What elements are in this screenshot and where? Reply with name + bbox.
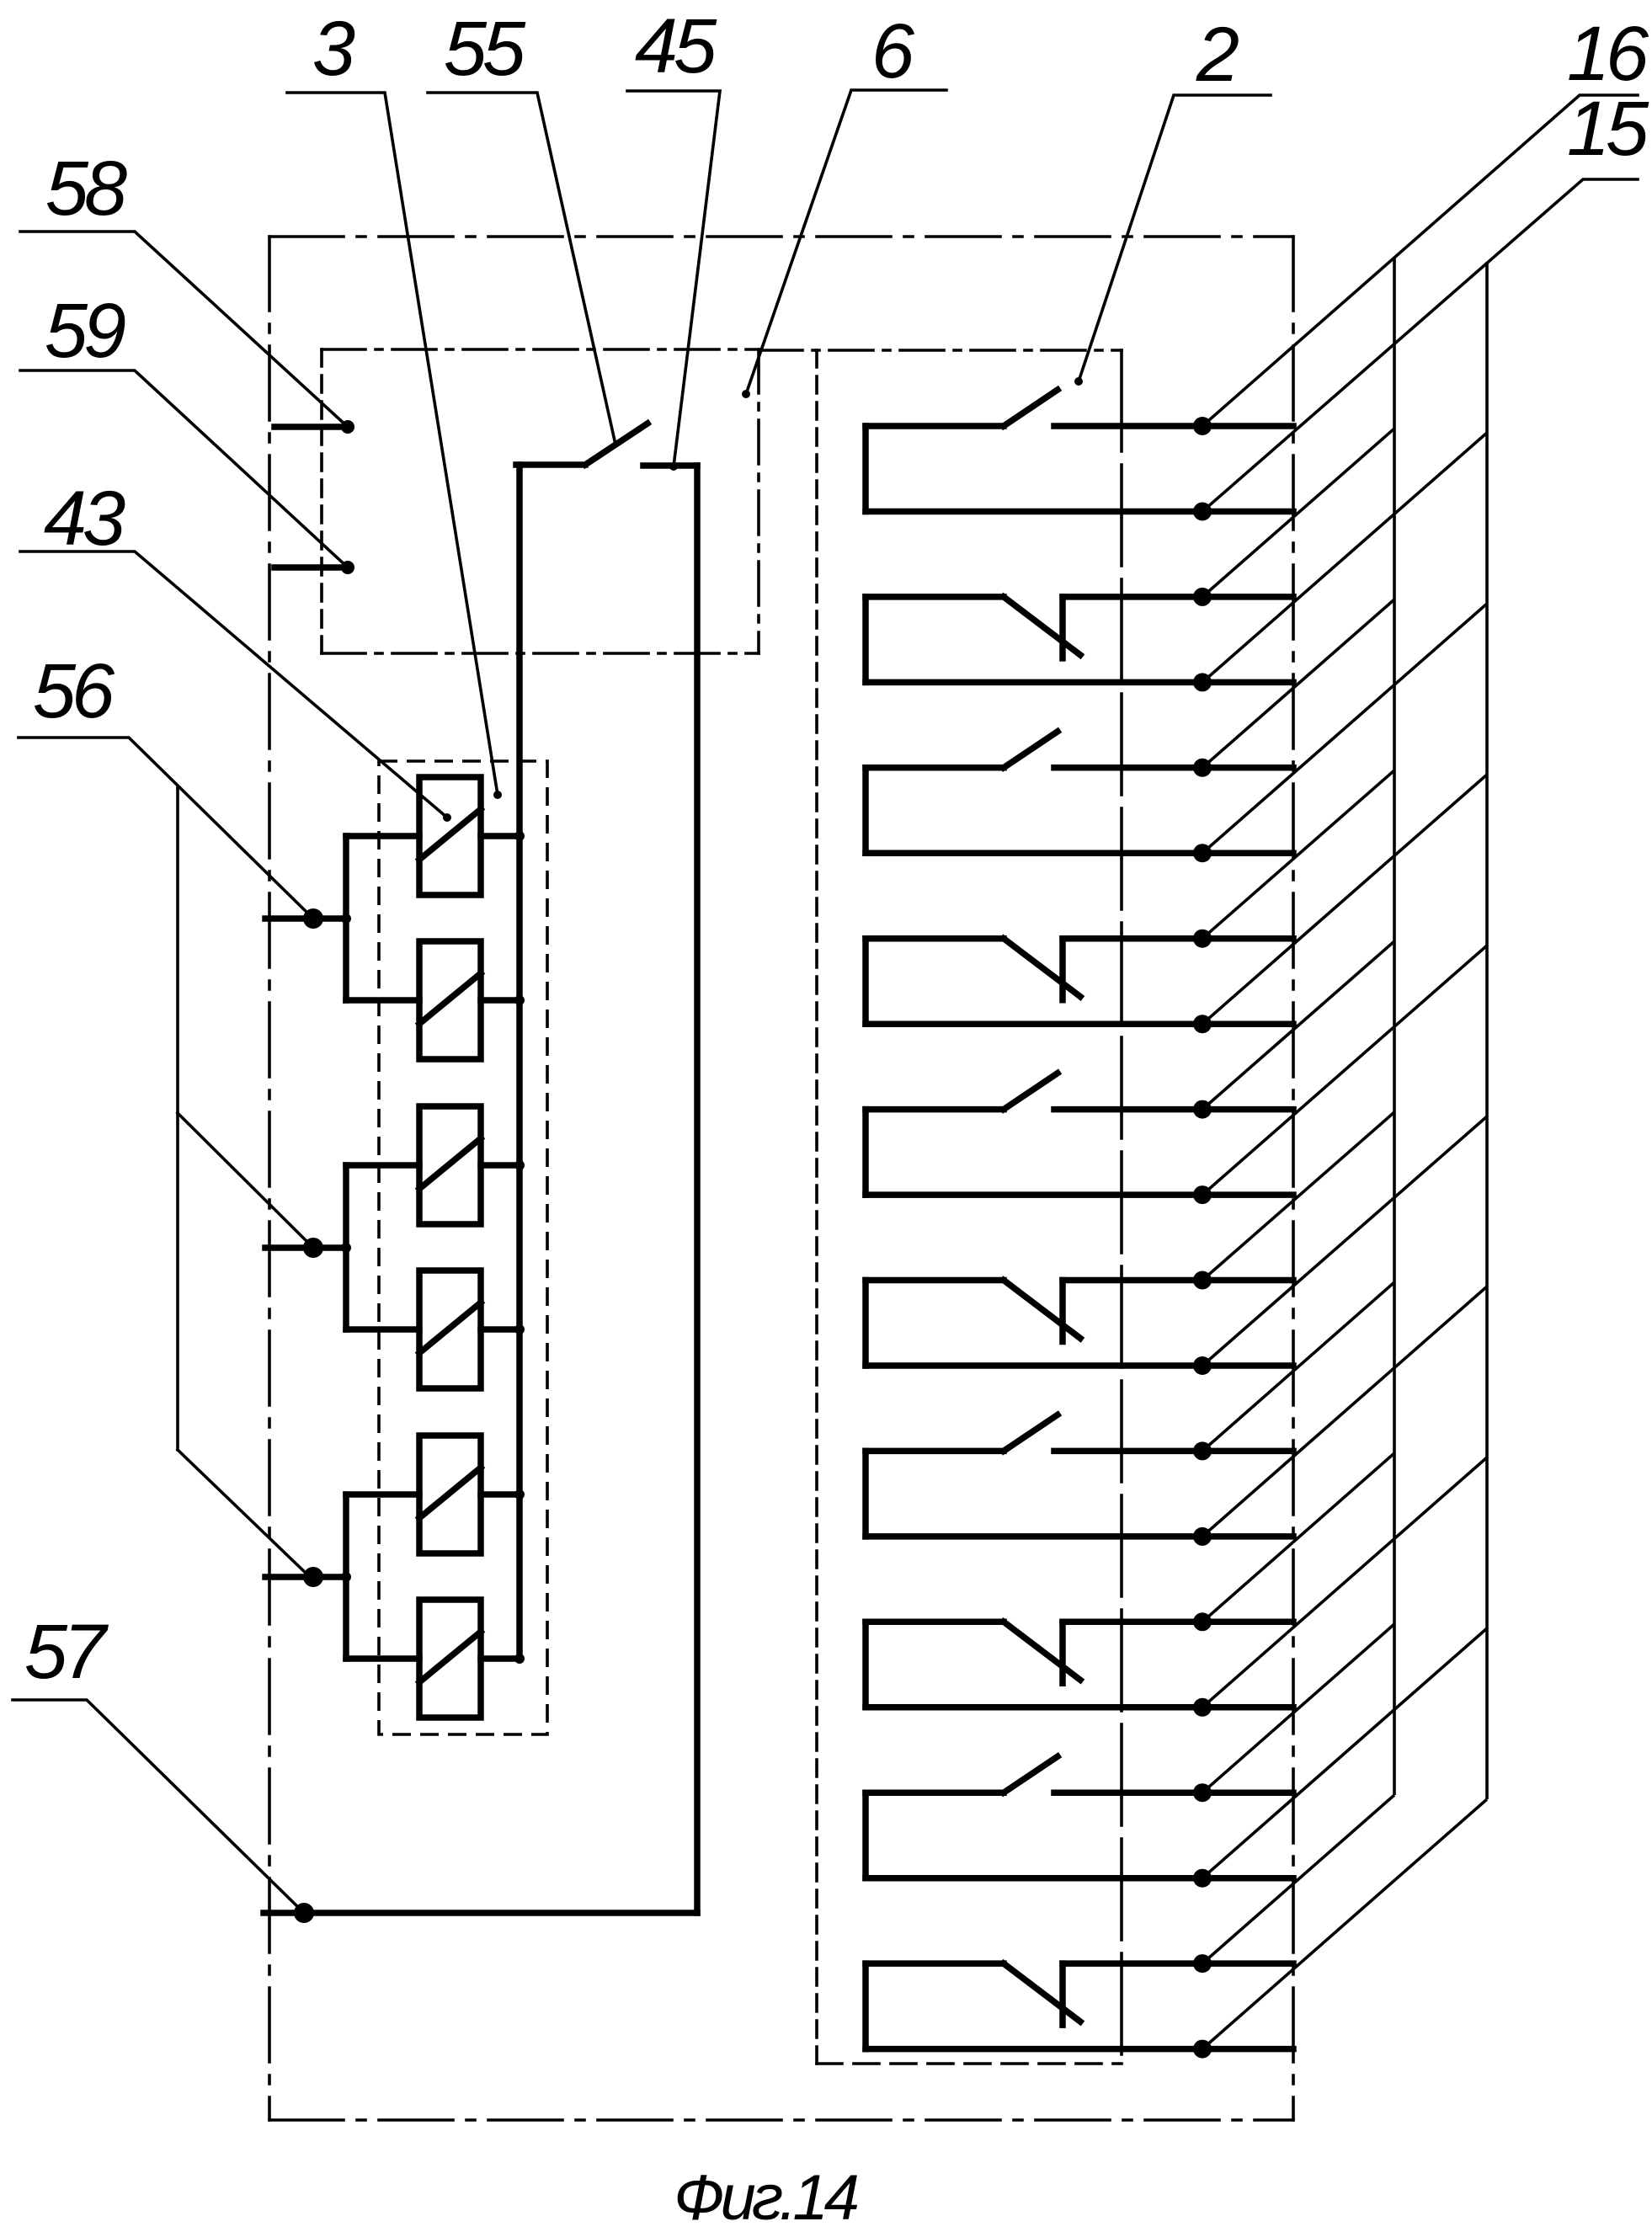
svg-text:56: 56 xyxy=(33,648,115,734)
svg-text:Фиг.14: Фиг.14 xyxy=(674,2162,858,2232)
svg-text:58: 58 xyxy=(45,146,127,232)
svg-text:2: 2 xyxy=(1196,12,1239,98)
svg-text:45: 45 xyxy=(635,3,717,89)
svg-text:15: 15 xyxy=(1567,86,1649,172)
svg-text:55: 55 xyxy=(444,6,526,92)
svg-text:16: 16 xyxy=(1567,11,1649,97)
svg-text:6: 6 xyxy=(871,8,915,94)
svg-text:59: 59 xyxy=(45,288,125,374)
svg-text:57: 57 xyxy=(24,1609,109,1695)
svg-text:43: 43 xyxy=(44,476,125,562)
svg-text:3: 3 xyxy=(312,6,355,92)
